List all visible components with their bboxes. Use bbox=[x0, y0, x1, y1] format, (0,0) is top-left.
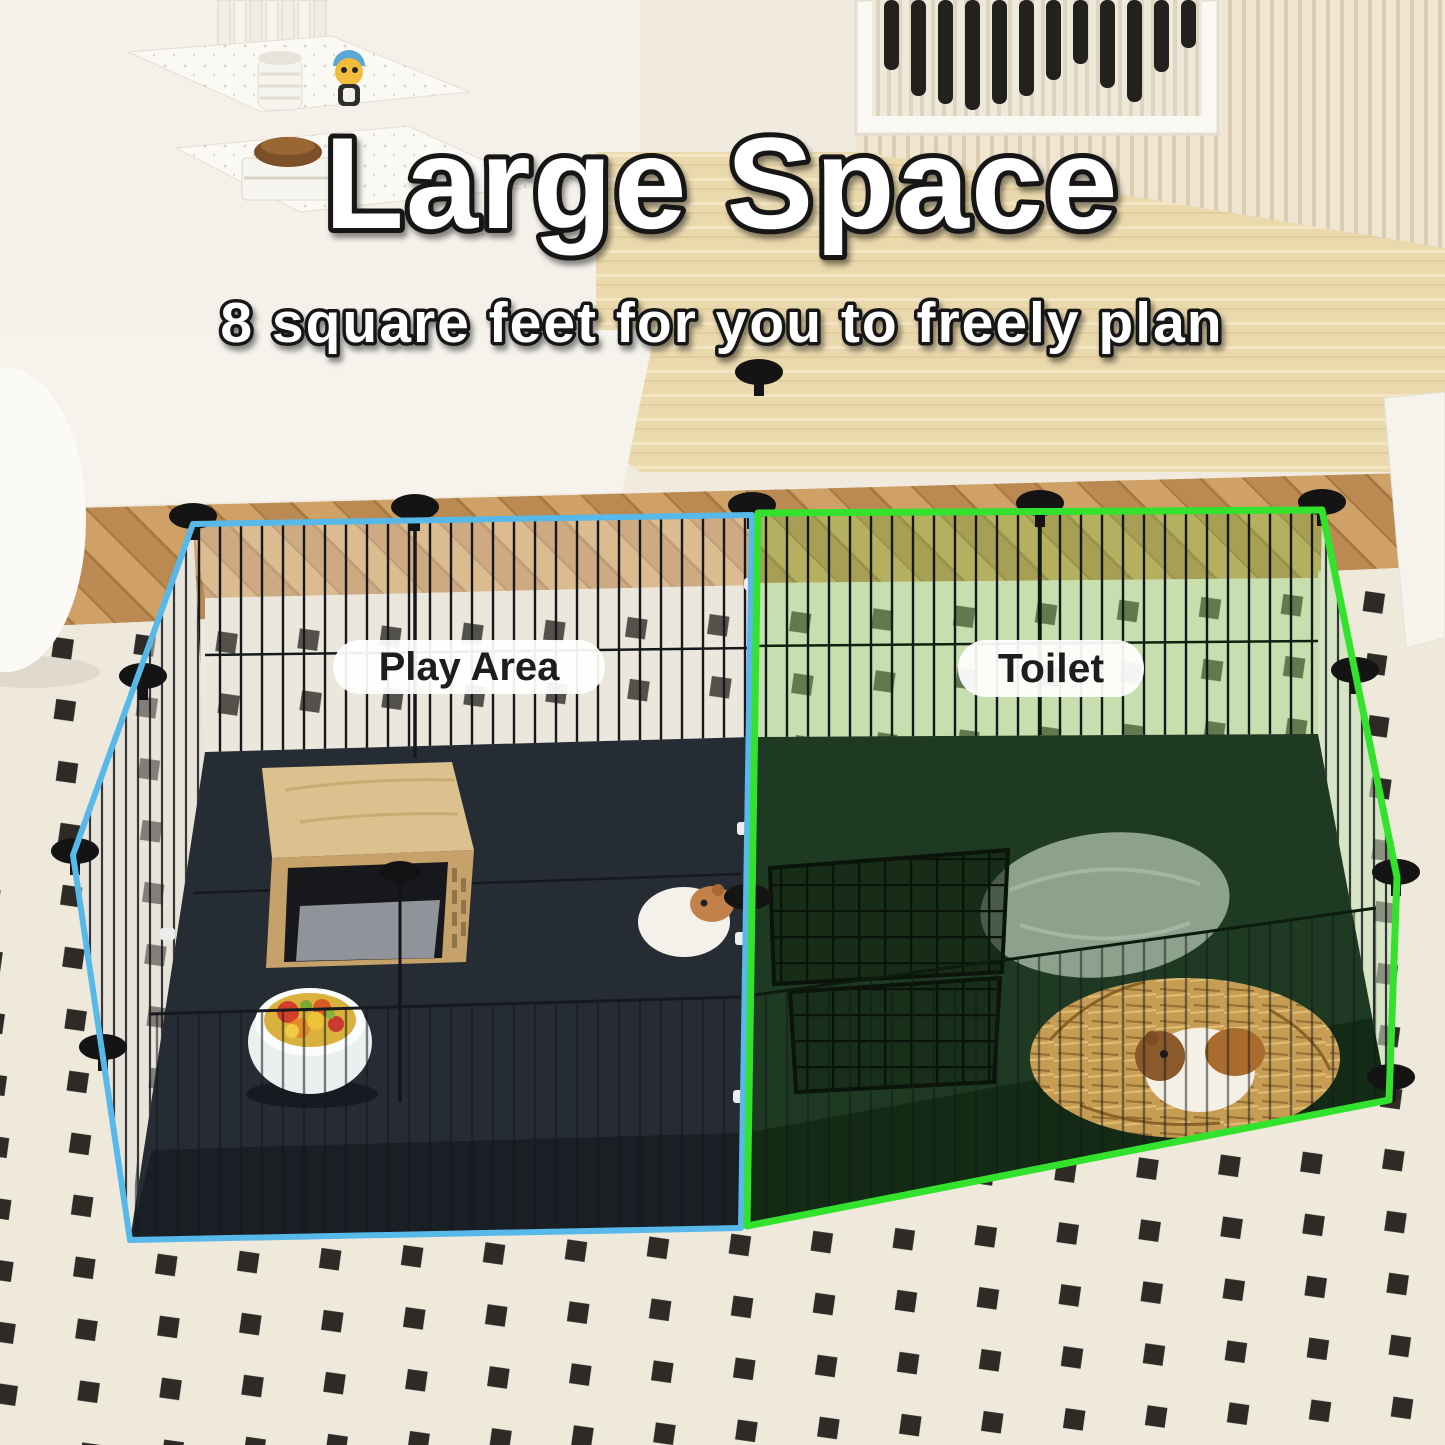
page-title: Large Space bbox=[324, 110, 1119, 256]
slat-panel bbox=[1222, 0, 1445, 250]
product-image: Play Area Toilet Large Space 8 square fe… bbox=[0, 0, 1445, 1445]
wooden-hideout bbox=[262, 762, 474, 968]
grey-cushion bbox=[296, 900, 440, 961]
toilet-label: Toilet bbox=[998, 645, 1105, 691]
play-area-label: Play Area bbox=[379, 645, 561, 689]
white-counter bbox=[0, 330, 655, 508]
headings: Large Space 8 square feet for you to fre… bbox=[220, 110, 1223, 355]
interior-post-cap bbox=[380, 861, 420, 883]
page-subtitle: 8 square feet for you to freely plan bbox=[220, 291, 1223, 355]
scene-canvas: Play Area Toilet Large Space 8 square fe… bbox=[0, 0, 1445, 1445]
vase bbox=[258, 51, 302, 110]
back-wall-play bbox=[193, 515, 752, 752]
back-wall-toilet bbox=[752, 511, 1322, 737]
